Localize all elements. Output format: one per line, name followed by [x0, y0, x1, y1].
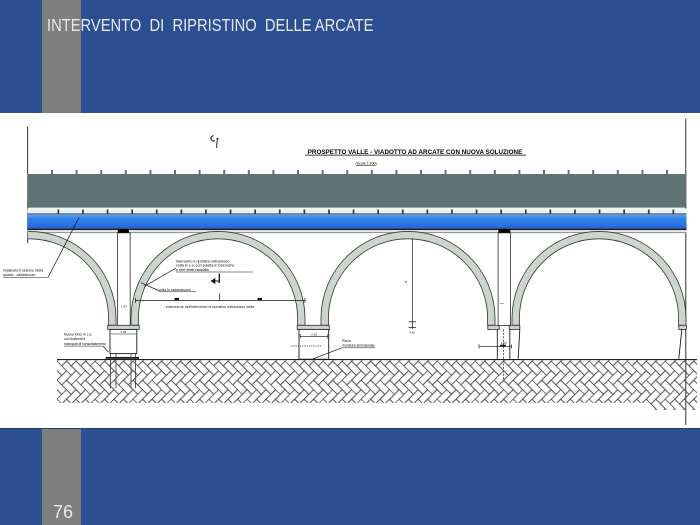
svg-text:micropali di consolidamento: micropali di consolidamento — [64, 342, 106, 346]
svg-text:Nuova fond. in c.a.: Nuova fond. in c.a. — [64, 333, 92, 337]
svg-text:(Scala 1:200): (Scala 1:200) — [355, 162, 376, 166]
svg-text:con tirafondi e: con tirafondi e — [64, 337, 85, 341]
svg-text:estensione dell'intervento di: estensione dell'intervento di ripristino… — [166, 305, 255, 309]
svg-text:acciaio - calcestruzzo: acciaio - calcestruzzo — [3, 273, 36, 277]
svg-text:1.50: 1.50 — [120, 330, 126, 334]
svg-text:4.60: 4.60 — [409, 331, 415, 335]
svg-text:2.50: 2.50 — [311, 332, 317, 336]
svg-text:volta in calcestruzzo: volta in calcestruzzo — [159, 288, 191, 292]
svg-text:muratura ammalorata: muratura ammalorata — [342, 344, 375, 348]
svg-text:Intervento a ripristino estrad: Intervento a ripristino estradosso — [176, 259, 230, 263]
svg-text:Impalcato in sezione mista: Impalcato in sezione mista — [3, 269, 43, 273]
svg-text:2.50: 2.50 — [501, 341, 507, 345]
svg-text:e rete elettrosaldata: e rete elettrosaldata — [176, 268, 210, 272]
svg-text:1.50: 1.50 — [121, 305, 127, 309]
svg-text:volta in c.a. con soletta in b: volta in c.a. con soletta in betoncino — [176, 264, 234, 268]
svg-text:Pila in: Pila in — [342, 339, 351, 343]
svg-text:h: h — [405, 279, 407, 284]
